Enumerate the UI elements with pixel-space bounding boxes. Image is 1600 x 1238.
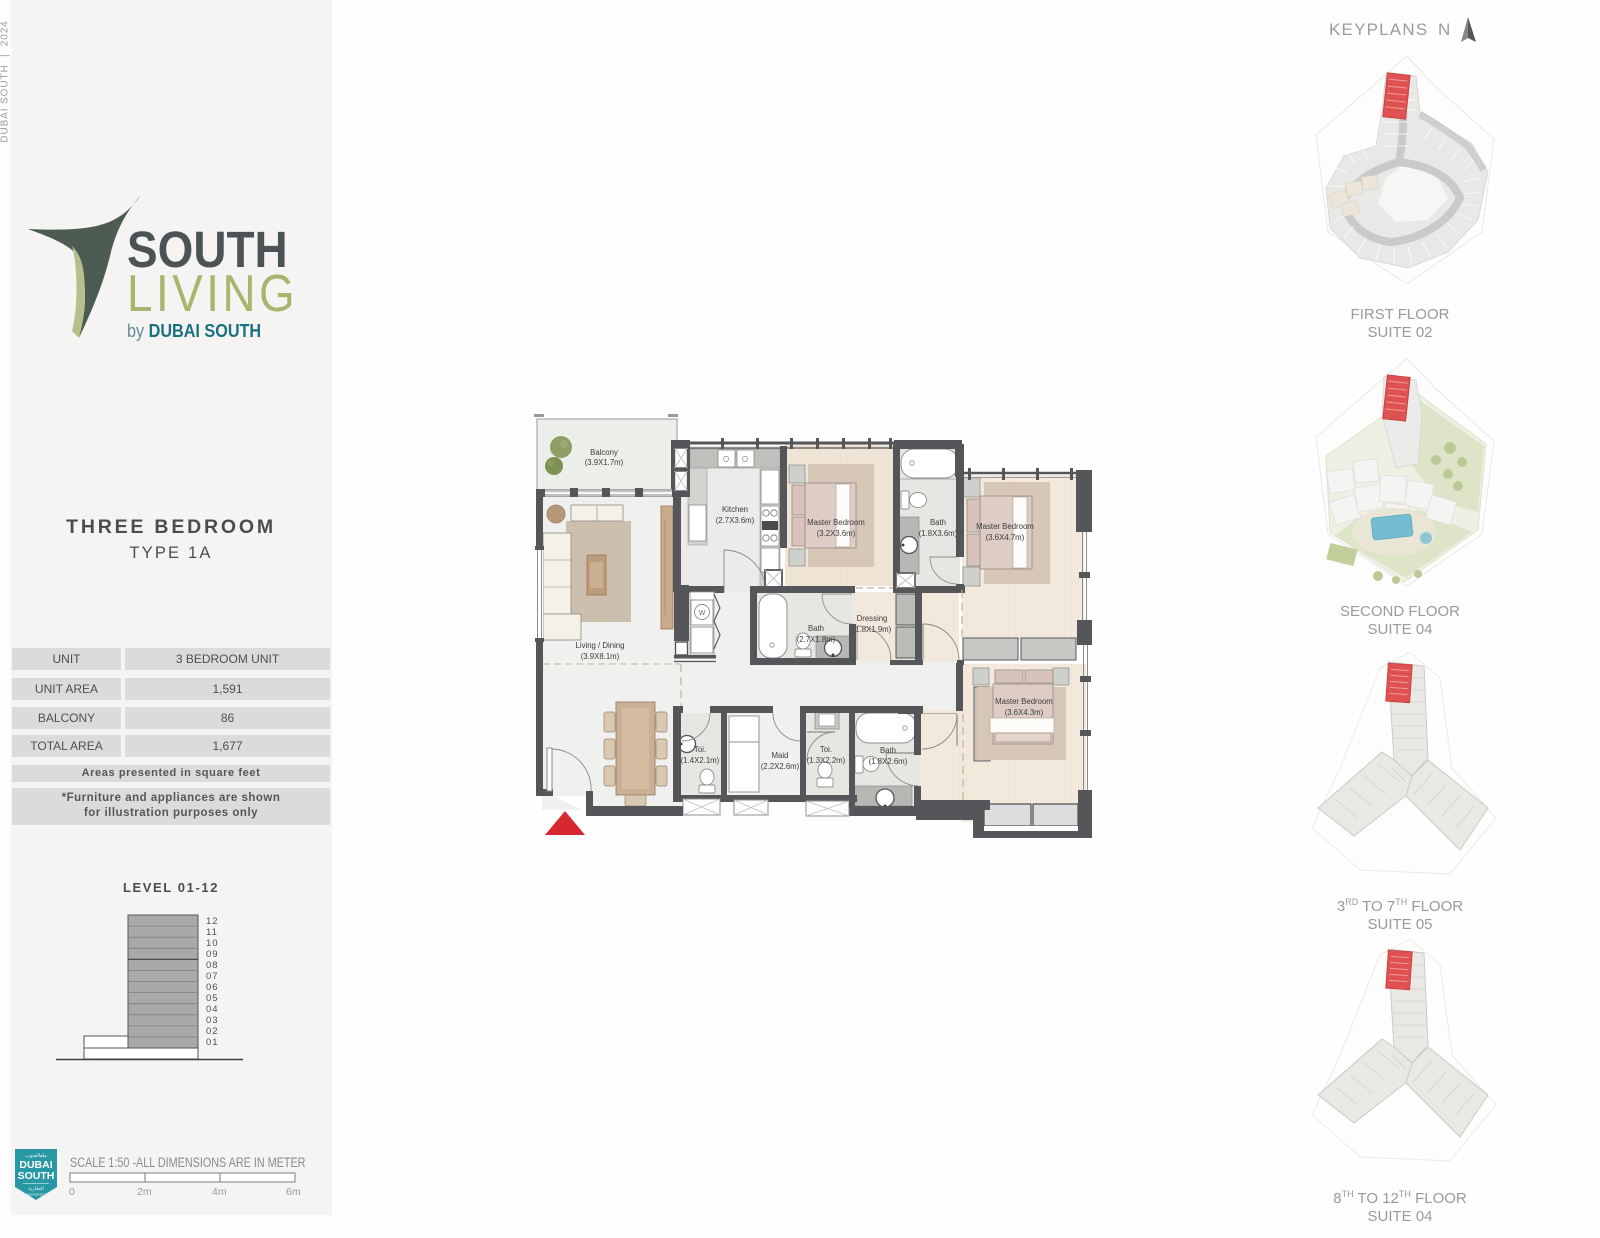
svg-text:Kitchen: Kitchen	[722, 505, 748, 514]
svg-text:06: 06	[206, 982, 219, 993]
svg-text:4m: 4m	[212, 1186, 227, 1198]
svg-text:Master Bedroom: Master Bedroom	[807, 518, 865, 527]
svg-text:05: 05	[206, 993, 219, 1004]
svg-text:02: 02	[206, 1026, 219, 1037]
svg-text:SOUTH: SOUTH	[18, 1170, 55, 1182]
svg-text:12: 12	[206, 916, 219, 927]
svg-text:Living / Dining: Living / Dining	[576, 641, 625, 650]
svg-text:(3.6X4.3m): (3.6X4.3m)	[1005, 708, 1044, 717]
svg-text:03: 03	[206, 1015, 219, 1026]
svg-text:Maid: Maid	[772, 751, 789, 760]
svg-text:(1.4X2.1m): (1.4X2.1m)	[681, 756, 720, 765]
svg-text:PROPERTIES: PROPERTIES	[25, 1193, 48, 1197]
svg-text:العقارية: العقارية	[28, 1186, 44, 1192]
svg-text:(1.8X3.6m): (1.8X3.6m)	[919, 529, 958, 538]
svg-text:(1.3X2.2m): (1.3X2.2m)	[807, 756, 846, 765]
svg-text:07: 07	[206, 971, 219, 982]
svg-text:0: 0	[69, 1186, 75, 1198]
svg-text:08: 08	[206, 960, 219, 971]
svg-text:Bath: Bath	[808, 624, 824, 633]
svg-text:Toi.: Toi.	[694, 745, 706, 754]
svg-text:Master Bedroom: Master Bedroom	[976, 522, 1034, 531]
svg-text:(2.7X1.8m): (2.7X1.8m)	[797, 635, 836, 644]
svg-text:Bath: Bath	[880, 746, 896, 755]
svg-text:(2.2X2.6m): (2.2X2.6m)	[761, 762, 800, 771]
svg-text:04: 04	[206, 1004, 219, 1015]
svg-text:2m: 2m	[137, 1186, 152, 1198]
svg-text:10: 10	[206, 938, 219, 949]
svg-text:Bath: Bath	[930, 518, 946, 527]
svg-text:(3.2X3.6m): (3.2X3.6m)	[817, 529, 856, 538]
svg-text:W: W	[699, 610, 706, 617]
svg-text:Dressing: Dressing	[857, 614, 888, 623]
svg-text:(1.8X2.6m): (1.8X2.6m)	[869, 757, 908, 766]
svg-text:(3.6X4.7m): (3.6X4.7m)	[986, 533, 1025, 542]
svg-text:(3.9X1.7m): (3.9X1.7m)	[585, 458, 624, 467]
svg-text:09: 09	[206, 949, 219, 960]
svg-text:01: 01	[206, 1037, 219, 1048]
svg-text:Balcony: Balcony	[590, 448, 618, 457]
svg-text:11: 11	[206, 927, 218, 938]
svg-text:Master Bedroom: Master Bedroom	[995, 697, 1053, 706]
svg-text:(3.9X8.1m): (3.9X8.1m)	[581, 652, 620, 661]
svg-text:(2.7X3.6m): (2.7X3.6m)	[716, 516, 755, 525]
svg-text:6m: 6m	[286, 1186, 301, 1198]
svg-text:Toi.: Toi.	[820, 745, 832, 754]
